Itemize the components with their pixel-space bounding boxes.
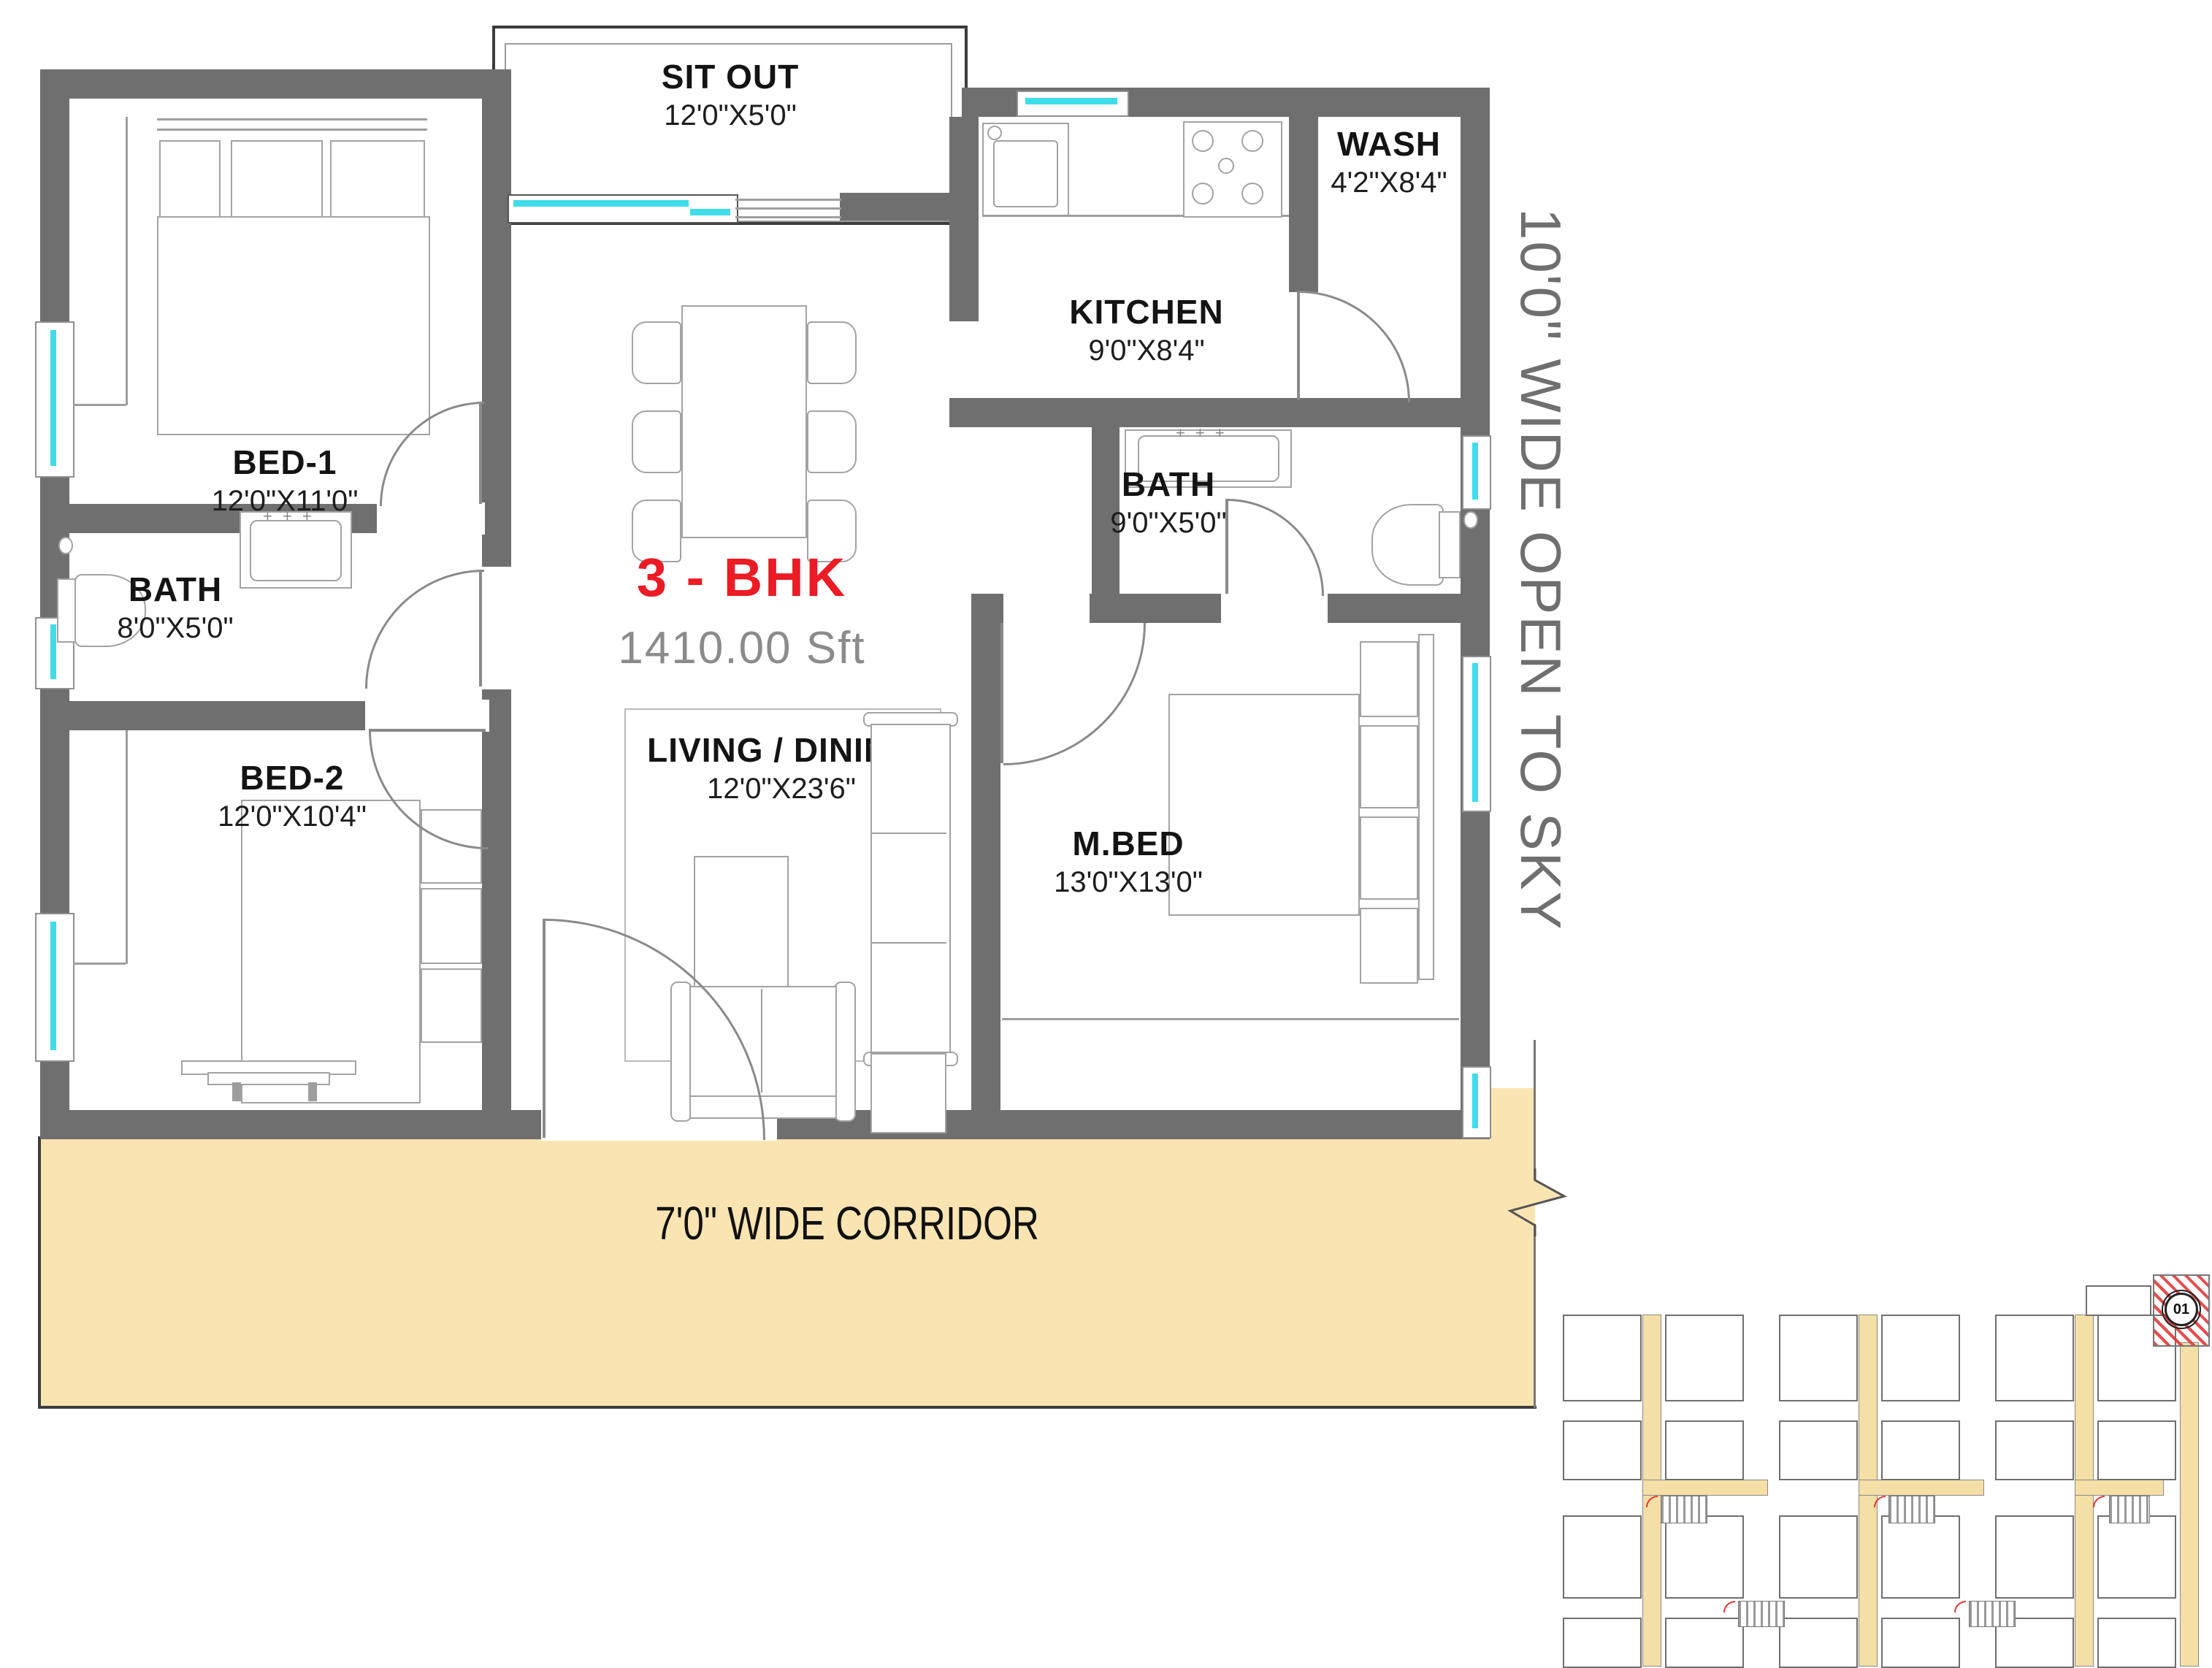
keyplan-stair-icon	[1969, 1601, 2016, 1627]
bed1-pillow-3	[330, 140, 425, 218]
keyplan-unit	[1563, 1420, 1642, 1480]
bed1-wardrobe-line-v	[126, 117, 128, 405]
window-bed1-glass	[50, 330, 56, 466]
opening-bathright-door	[1221, 592, 1328, 624]
keyplan-unit	[1779, 1515, 1858, 1599]
sitout-name: SIT OUT	[584, 57, 876, 96]
keyplan-corridor-right	[2180, 1342, 2199, 1667]
sofa-cushion-divider	[761, 989, 762, 1093]
bathright-toilet-tank	[1439, 511, 1461, 578]
mbed-pillow-2	[1360, 725, 1418, 808]
main-door-leaf	[543, 919, 546, 1138]
bathleft-label: BATH 8'0"X5'0"	[29, 570, 321, 645]
bed1-pillow-1	[159, 140, 221, 218]
corridor-right-line-lower	[1534, 1224, 1536, 1408]
bathleft-dims: 8'0"X5'0"	[29, 612, 321, 645]
keyplan-unit	[2086, 1285, 2151, 1316]
keyplan-unit	[2097, 1618, 2176, 1668]
bathright-tap-glyph	[1463, 511, 1478, 529]
bed1-headboard-line-2	[157, 129, 427, 131]
key-plan: 01	[1563, 1271, 2212, 1668]
corridor-bottom-line	[38, 1406, 1536, 1409]
wash-door-arc	[1298, 291, 1410, 402]
bed2-pillow-2	[421, 888, 482, 964]
bathright-toilet-bowl	[1371, 504, 1444, 586]
tv-unit-divider-2	[872, 942, 946, 944]
keyplan-unit	[1665, 1618, 1744, 1668]
keyplan-unit	[2097, 1515, 2176, 1599]
bed1-headboard-line-1	[157, 118, 427, 120]
keyplan-unit	[1995, 1420, 2074, 1480]
tv-unit-divider-1	[872, 833, 946, 834]
opening-bathleft-door	[479, 567, 514, 689]
sitout-dims: 12'0"X5'0"	[584, 99, 876, 132]
bathright-door-leaf	[1225, 499, 1228, 594]
keyplan-corridor-h3	[2075, 1480, 2164, 1496]
bed1-bed	[157, 216, 430, 435]
stove-burner-3	[1192, 183, 1214, 204]
window-kitchen-glass	[1025, 98, 1117, 104]
bed2-wardrobe-line-v	[126, 730, 128, 964]
mbed-name: M.BED	[982, 824, 1274, 863]
keyplan-door-mark	[2093, 1496, 2105, 1507]
window-bed2-glass	[50, 922, 56, 1050]
tv-unit-body	[870, 724, 951, 1055]
keyplan-door-mark	[1723, 1601, 1735, 1612]
mbed-pillow-1	[1360, 641, 1418, 717]
keyplan-corridor-h1	[1642, 1480, 1768, 1496]
bathleft-door-leaf	[479, 570, 482, 686]
mbed-door-arc	[1003, 623, 1146, 765]
dining-chair-r2	[807, 410, 857, 473]
bed2-wardrobe-line-h	[73, 963, 126, 965]
corridor-area	[40, 1139, 1535, 1408]
keyplan-unit-number: 01	[2165, 1293, 2198, 1326]
wash-door-leaf	[1297, 291, 1300, 400]
dining-chair-l2	[632, 410, 681, 473]
mbed-wardrobe-line	[1002, 1018, 1459, 1020]
window-mbed-lower-glass	[1472, 1074, 1478, 1128]
open-to-sky-label: 10'0" WIDE OPEN TO SKY	[1504, 208, 1574, 997]
stove-burner-center	[1218, 158, 1234, 174]
keyplan-door-mark	[1954, 1601, 1966, 1612]
bathleft-door-arc	[365, 570, 484, 689]
wall-kitchen-left	[949, 117, 979, 321]
wall-kitchen-bottom	[949, 398, 1490, 427]
mbed-label: M.BED 13'0"X13'0"	[982, 824, 1274, 899]
opening-bed2-door	[365, 700, 489, 732]
corridor-left-line	[38, 1136, 41, 1409]
wash-name: WASH	[1243, 124, 1535, 164]
keyplan-unit	[1665, 1315, 1744, 1401]
bed2-dims: 12'0"X10'4"	[146, 800, 438, 833]
keyplan-unit	[2097, 1420, 2176, 1480]
dining-chair-l1	[632, 321, 681, 384]
wash-dims: 4'2"X8'4"	[1243, 167, 1535, 199]
mbed-headboard	[1418, 634, 1434, 980]
mbed-dims: 13'0"X13'0"	[982, 866, 1274, 899]
kitchen-sink	[993, 140, 1058, 207]
window-bathright-glass	[1472, 443, 1478, 500]
keyplan-unit	[1779, 1618, 1858, 1668]
keyplan-unit	[1563, 1618, 1642, 1668]
coffee-table	[694, 856, 789, 1006]
bed2-bed	[241, 800, 421, 1103]
bathleft-tap-glyph	[58, 537, 73, 554]
corridor-right-extension	[1490, 1088, 1535, 1147]
mbed-pillow-4	[1360, 908, 1418, 984]
floor-plan-canvas: 7'0" WIDE CORRIDOR SIT OUT 12'0"X5'0"	[0, 0, 2212, 1668]
keyplan-unit	[1881, 1315, 1960, 1401]
keyplan-unit	[1995, 1515, 2074, 1599]
bathright-name: BATH	[1022, 464, 1314, 504]
keyplan-stair-icon	[2109, 1496, 2150, 1523]
keyplan-unit	[1881, 1515, 1960, 1599]
mbed-door-leaf	[1000, 623, 1003, 763]
kitchen-tap-glyph	[987, 126, 1002, 140]
bed1-door-leaf	[479, 402, 482, 504]
bed2-pillow-3	[421, 968, 482, 1043]
keyplan-unit	[1563, 1515, 1642, 1599]
keyplan-stair-icon	[1888, 1496, 1935, 1523]
bed1-pillow-2	[231, 140, 323, 218]
wash-label: WASH 4'2"X8'4"	[1243, 124, 1535, 199]
kitchen-dims: 9'0"X8'4"	[1000, 334, 1293, 367]
dining-chair-r1	[807, 321, 857, 384]
keyplan-unit	[1881, 1420, 1960, 1480]
keyplan-stair-icon	[1661, 1496, 1707, 1523]
sitout-label: SIT OUT 12'0"X5'0"	[584, 57, 876, 132]
mbed-pillow-3	[1360, 816, 1418, 900]
bathleft-name: BATH	[29, 570, 321, 609]
kitchen-name: KITCHEN	[1000, 292, 1293, 332]
window-mbed-glass	[1472, 663, 1478, 802]
plan-area: 1410.00 Sft	[596, 622, 888, 674]
keyplan-unit	[1995, 1315, 2074, 1401]
sitout-sliding-glass-1	[513, 200, 689, 207]
bed2-door-leaf	[369, 729, 486, 732]
keyplan-unit	[1779, 1420, 1858, 1480]
corridor-right-line-upper	[1534, 1040, 1536, 1180]
keyplan-unit	[1563, 1315, 1642, 1401]
sitout-threshold-line-3	[735, 216, 841, 218]
corridor-label: 7'0" WIDE CORRIDOR	[613, 1196, 1081, 1250]
sofa-armrest-right	[834, 982, 856, 1122]
keyplan-unit	[1665, 1420, 1744, 1480]
keyplan-unit	[1665, 1515, 1744, 1599]
bed1-wardrobe-line-h	[73, 404, 126, 406]
bathleft-tap-icon	[263, 507, 315, 526]
bed2-dresser-leg-2	[308, 1082, 317, 1101]
bed2-dresser-leg-1	[232, 1082, 241, 1101]
side-table	[870, 1053, 946, 1133]
corridor-break-symbol	[1504, 1167, 1574, 1236]
stove-burner-1	[1192, 130, 1214, 152]
wall-bed1-top	[40, 69, 511, 99]
keyplan-corridor-h2	[1859, 1480, 1984, 1496]
kitchen-label: KITCHEN 9'0"X8'4"	[1000, 292, 1293, 367]
sitout-sliding-glass-2	[690, 209, 730, 215]
plan-title: 3 - BHK	[596, 546, 888, 608]
wall-sitout-stub	[840, 193, 949, 221]
opening-mbed-door	[1003, 592, 1090, 624]
sitout-threshold-line-1	[735, 199, 841, 201]
sitout-threshold-line-2	[735, 207, 841, 210]
keyplan-stair-icon	[1738, 1601, 1785, 1627]
bathright-tap-icon	[1176, 424, 1228, 443]
dining-table	[681, 305, 807, 538]
keyplan-unit	[1881, 1618, 1960, 1668]
keyplan-unit	[1779, 1315, 1858, 1401]
